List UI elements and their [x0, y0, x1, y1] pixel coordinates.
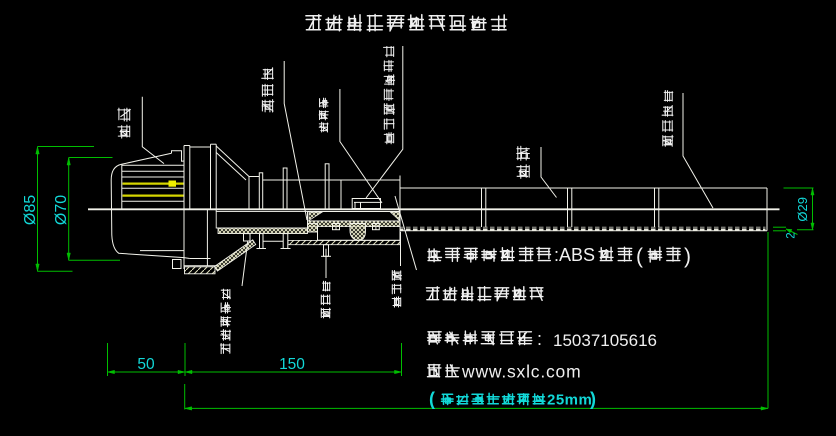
svg-text:): )	[590, 389, 596, 409]
svg-text::: :	[537, 329, 542, 349]
svg-text:50: 50	[137, 356, 155, 373]
svg-text:150: 150	[279, 356, 305, 373]
svg-text:Ø85: Ø85	[22, 195, 39, 225]
svg-text:www.sxlc.com: www.sxlc.com	[461, 362, 581, 382]
svg-text:Ø70: Ø70	[53, 195, 70, 225]
svg-text:): )	[684, 245, 691, 268]
svg-text:(: (	[636, 245, 643, 268]
svg-text:(: (	[429, 389, 435, 409]
svg-text:Ø29: Ø29	[795, 197, 810, 222]
svg-text::ABS: :ABS	[554, 245, 595, 265]
svg-text:15037105616: 15037105616	[553, 331, 657, 350]
svg-text:2: 2	[786, 232, 798, 238]
svg-text:25mm: 25mm	[547, 392, 592, 409]
